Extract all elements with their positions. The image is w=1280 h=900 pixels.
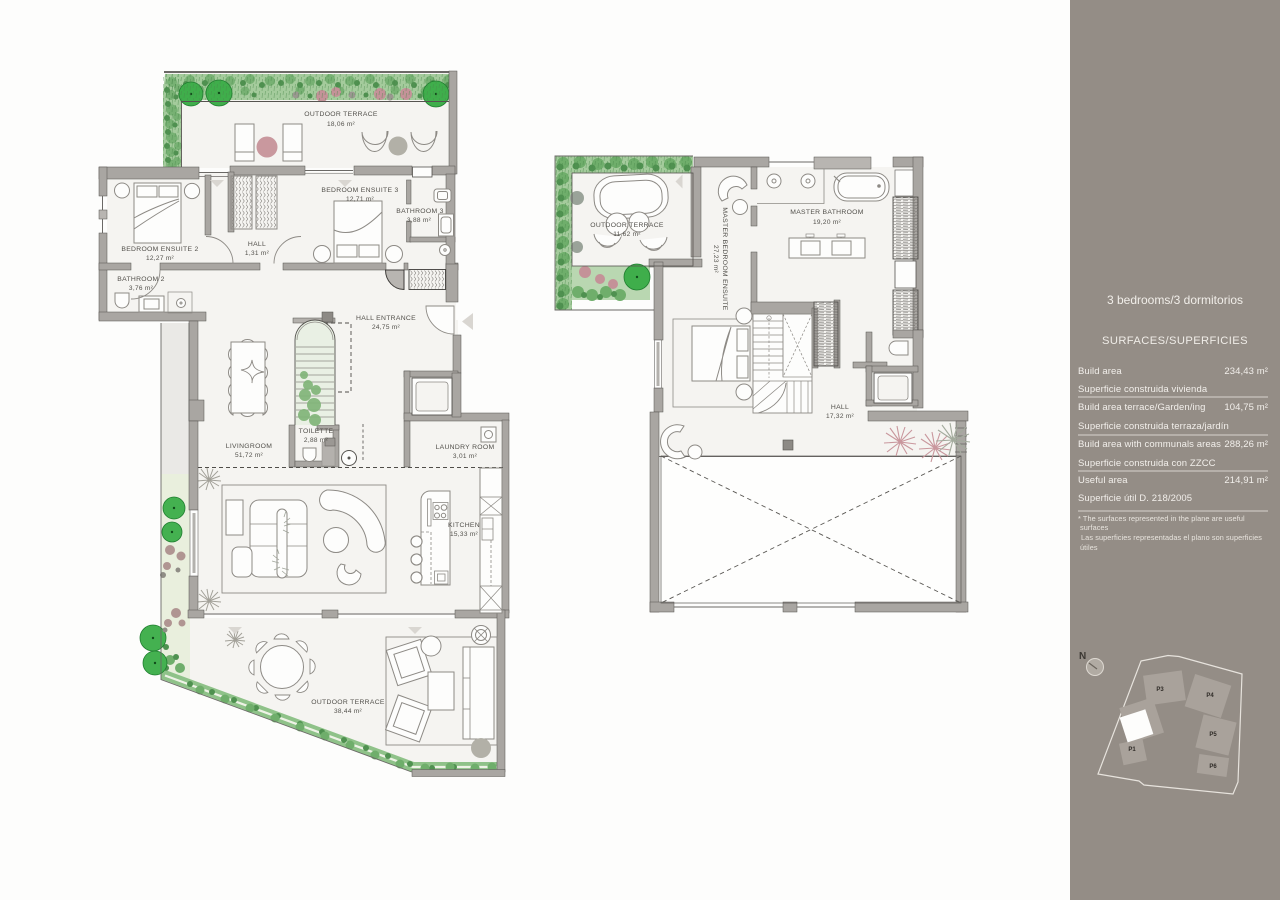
svg-text:SURFACES/SUPERFICIES: SURFACES/SUPERFICIES <box>1102 335 1248 347</box>
svg-text:17,32 m²: 17,32 m² <box>826 413 855 420</box>
svg-text:18,06 m²: 18,06 m² <box>327 121 356 128</box>
svg-text:OUTDOOR TERRACE: OUTDOOR TERRACE <box>304 111 378 118</box>
svg-text:12,71 m²: 12,71 m² <box>346 196 375 203</box>
svg-text:KITCHEN: KITCHEN <box>448 522 480 529</box>
svg-text:Build area: Build area <box>1078 366 1122 377</box>
svg-text:288,26 m²: 288,26 m² <box>1224 439 1268 450</box>
svg-text:19,20 m²: 19,20 m² <box>813 219 842 226</box>
svg-text:104,75 m²: 104,75 m² <box>1224 402 1268 413</box>
svg-text:12,27 m²: 12,27 m² <box>146 255 175 262</box>
svg-text:234,43 m²: 234,43 m² <box>1224 366 1268 377</box>
svg-text:OUTDOOR TERRACE: OUTDOOR TERRACE <box>311 699 385 706</box>
svg-text:3,01 m²: 3,01 m² <box>453 453 478 460</box>
svg-text:3,88 m²: 3,88 m² <box>407 217 432 224</box>
svg-text:1,31 m²: 1,31 m² <box>245 250 270 257</box>
svg-text:MASTER BATHROOM: MASTER BATHROOM <box>790 209 864 216</box>
svg-text:N: N <box>1079 651 1086 662</box>
svg-text:3,76 m²: 3,76 m² <box>129 285 154 292</box>
svg-text:Build area with communals area: Build area with communals areas <box>1078 439 1221 450</box>
svg-text:útiles: útiles <box>1080 543 1098 552</box>
svg-text:11,62 m²: 11,62 m² <box>613 231 641 238</box>
svg-text:P3: P3 <box>1156 687 1164 693</box>
svg-text:27,23 m²: 27,23 m² <box>712 245 719 274</box>
svg-text:LIVINGROOM: LIVINGROOM <box>226 443 272 450</box>
svg-text:3 bedrooms/3 dormitorios: 3 bedrooms/3 dormitorios <box>1107 293 1243 307</box>
svg-text:38,44 m²: 38,44 m² <box>334 708 363 715</box>
svg-text:Superficie construida con ZZCC: Superficie construida con ZZCC <box>1078 458 1216 469</box>
svg-text:Superficie construida vivienda: Superficie construida vivienda <box>1078 384 1208 395</box>
svg-text:TOILETTE: TOILETTE <box>299 428 334 435</box>
svg-text:HALL: HALL <box>831 404 849 411</box>
svg-text:214,91 m²: 214,91 m² <box>1224 475 1268 486</box>
svg-text:24,75 m²: 24,75 m² <box>372 324 401 331</box>
svg-text:BATHROOM 3: BATHROOM 3 <box>396 208 443 215</box>
svg-text:LAUNDRY ROOM: LAUNDRY ROOM <box>436 444 495 451</box>
svg-text:HALL: HALL <box>248 241 266 248</box>
svg-text:P6: P6 <box>1209 764 1217 770</box>
svg-text:Las superficies representadas: Las superficies representadas el plano s… <box>1081 533 1262 542</box>
svg-text:OUTDOOR TERRACE: OUTDOOR TERRACE <box>590 222 664 229</box>
svg-text:surfaces: surfaces <box>1080 523 1109 532</box>
svg-text:P5: P5 <box>1209 732 1217 738</box>
svg-text:MASTER BEDROOM ENSUITE: MASTER BEDROOM ENSUITE <box>721 207 728 310</box>
svg-text:BEDROOM ENSUITE 3: BEDROOM ENSUITE 3 <box>321 187 398 194</box>
svg-text:Useful area: Useful area <box>1078 475 1128 486</box>
svg-text:* The surfaces represented: * The surfaces represented in the plane … <box>1078 514 1245 523</box>
svg-text:P4: P4 <box>1206 693 1214 699</box>
svg-text:P1: P1 <box>1128 747 1136 753</box>
svg-text:Build area terrace/Garden/ing: Build area terrace/Garden/ing <box>1078 402 1206 413</box>
svg-text:HALL ENTRANCE: HALL ENTRANCE <box>356 315 416 322</box>
svg-text:51,72 m²: 51,72 m² <box>235 452 264 459</box>
svg-text:BATHROOM 2: BATHROOM 2 <box>117 276 164 283</box>
svg-text:Superficie construida terraza/: Superficie construida terraza/jardín <box>1078 421 1229 432</box>
svg-text:2,88 m²: 2,88 m² <box>304 437 329 444</box>
svg-text:Superficie útil D. 218/2005: Superficie útil D. 218/2005 <box>1078 493 1192 504</box>
svg-text:BEDROOM ENSUITE 2: BEDROOM ENSUITE 2 <box>121 246 198 253</box>
svg-text:15,33 m²: 15,33 m² <box>450 531 479 538</box>
